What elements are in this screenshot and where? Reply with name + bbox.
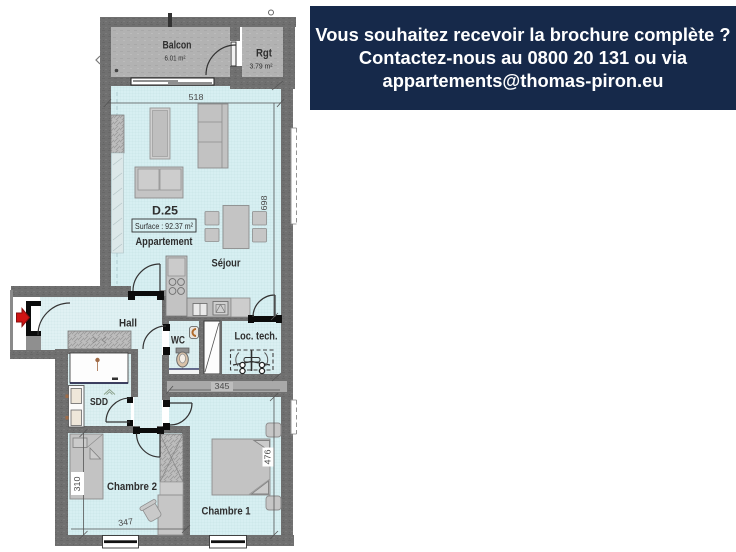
svg-text:SDD: SDD [90, 397, 108, 408]
svg-text:Rgt: Rgt [256, 48, 272, 60]
svg-text:476: 476 [262, 449, 272, 464]
svg-text:347: 347 [117, 516, 134, 528]
svg-text:Hall: Hall [119, 318, 137, 330]
svg-text:Appartement: Appartement [136, 236, 193, 248]
svg-text:Chambre 2: Chambre 2 [107, 481, 157, 493]
svg-text:Chambre 1: Chambre 1 [202, 506, 251, 518]
svg-text:Loc. tech.: Loc. tech. [235, 331, 278, 343]
svg-text:D.25: D.25 [152, 204, 178, 218]
svg-text:Séjour: Séjour [212, 258, 242, 270]
svg-text:698: 698 [259, 195, 269, 210]
svg-text:6.01 m²: 6.01 m² [165, 56, 187, 63]
svg-text:3.79 m²: 3.79 m² [250, 64, 274, 71]
svg-text:Surface : 92.37 m²: Surface : 92.37 m² [135, 221, 193, 231]
svg-text:WC: WC [171, 335, 185, 347]
svg-text:310: 310 [72, 476, 82, 491]
svg-text:345: 345 [215, 381, 230, 391]
svg-text:Balcon: Balcon [163, 40, 192, 52]
svg-text:518: 518 [189, 92, 204, 102]
